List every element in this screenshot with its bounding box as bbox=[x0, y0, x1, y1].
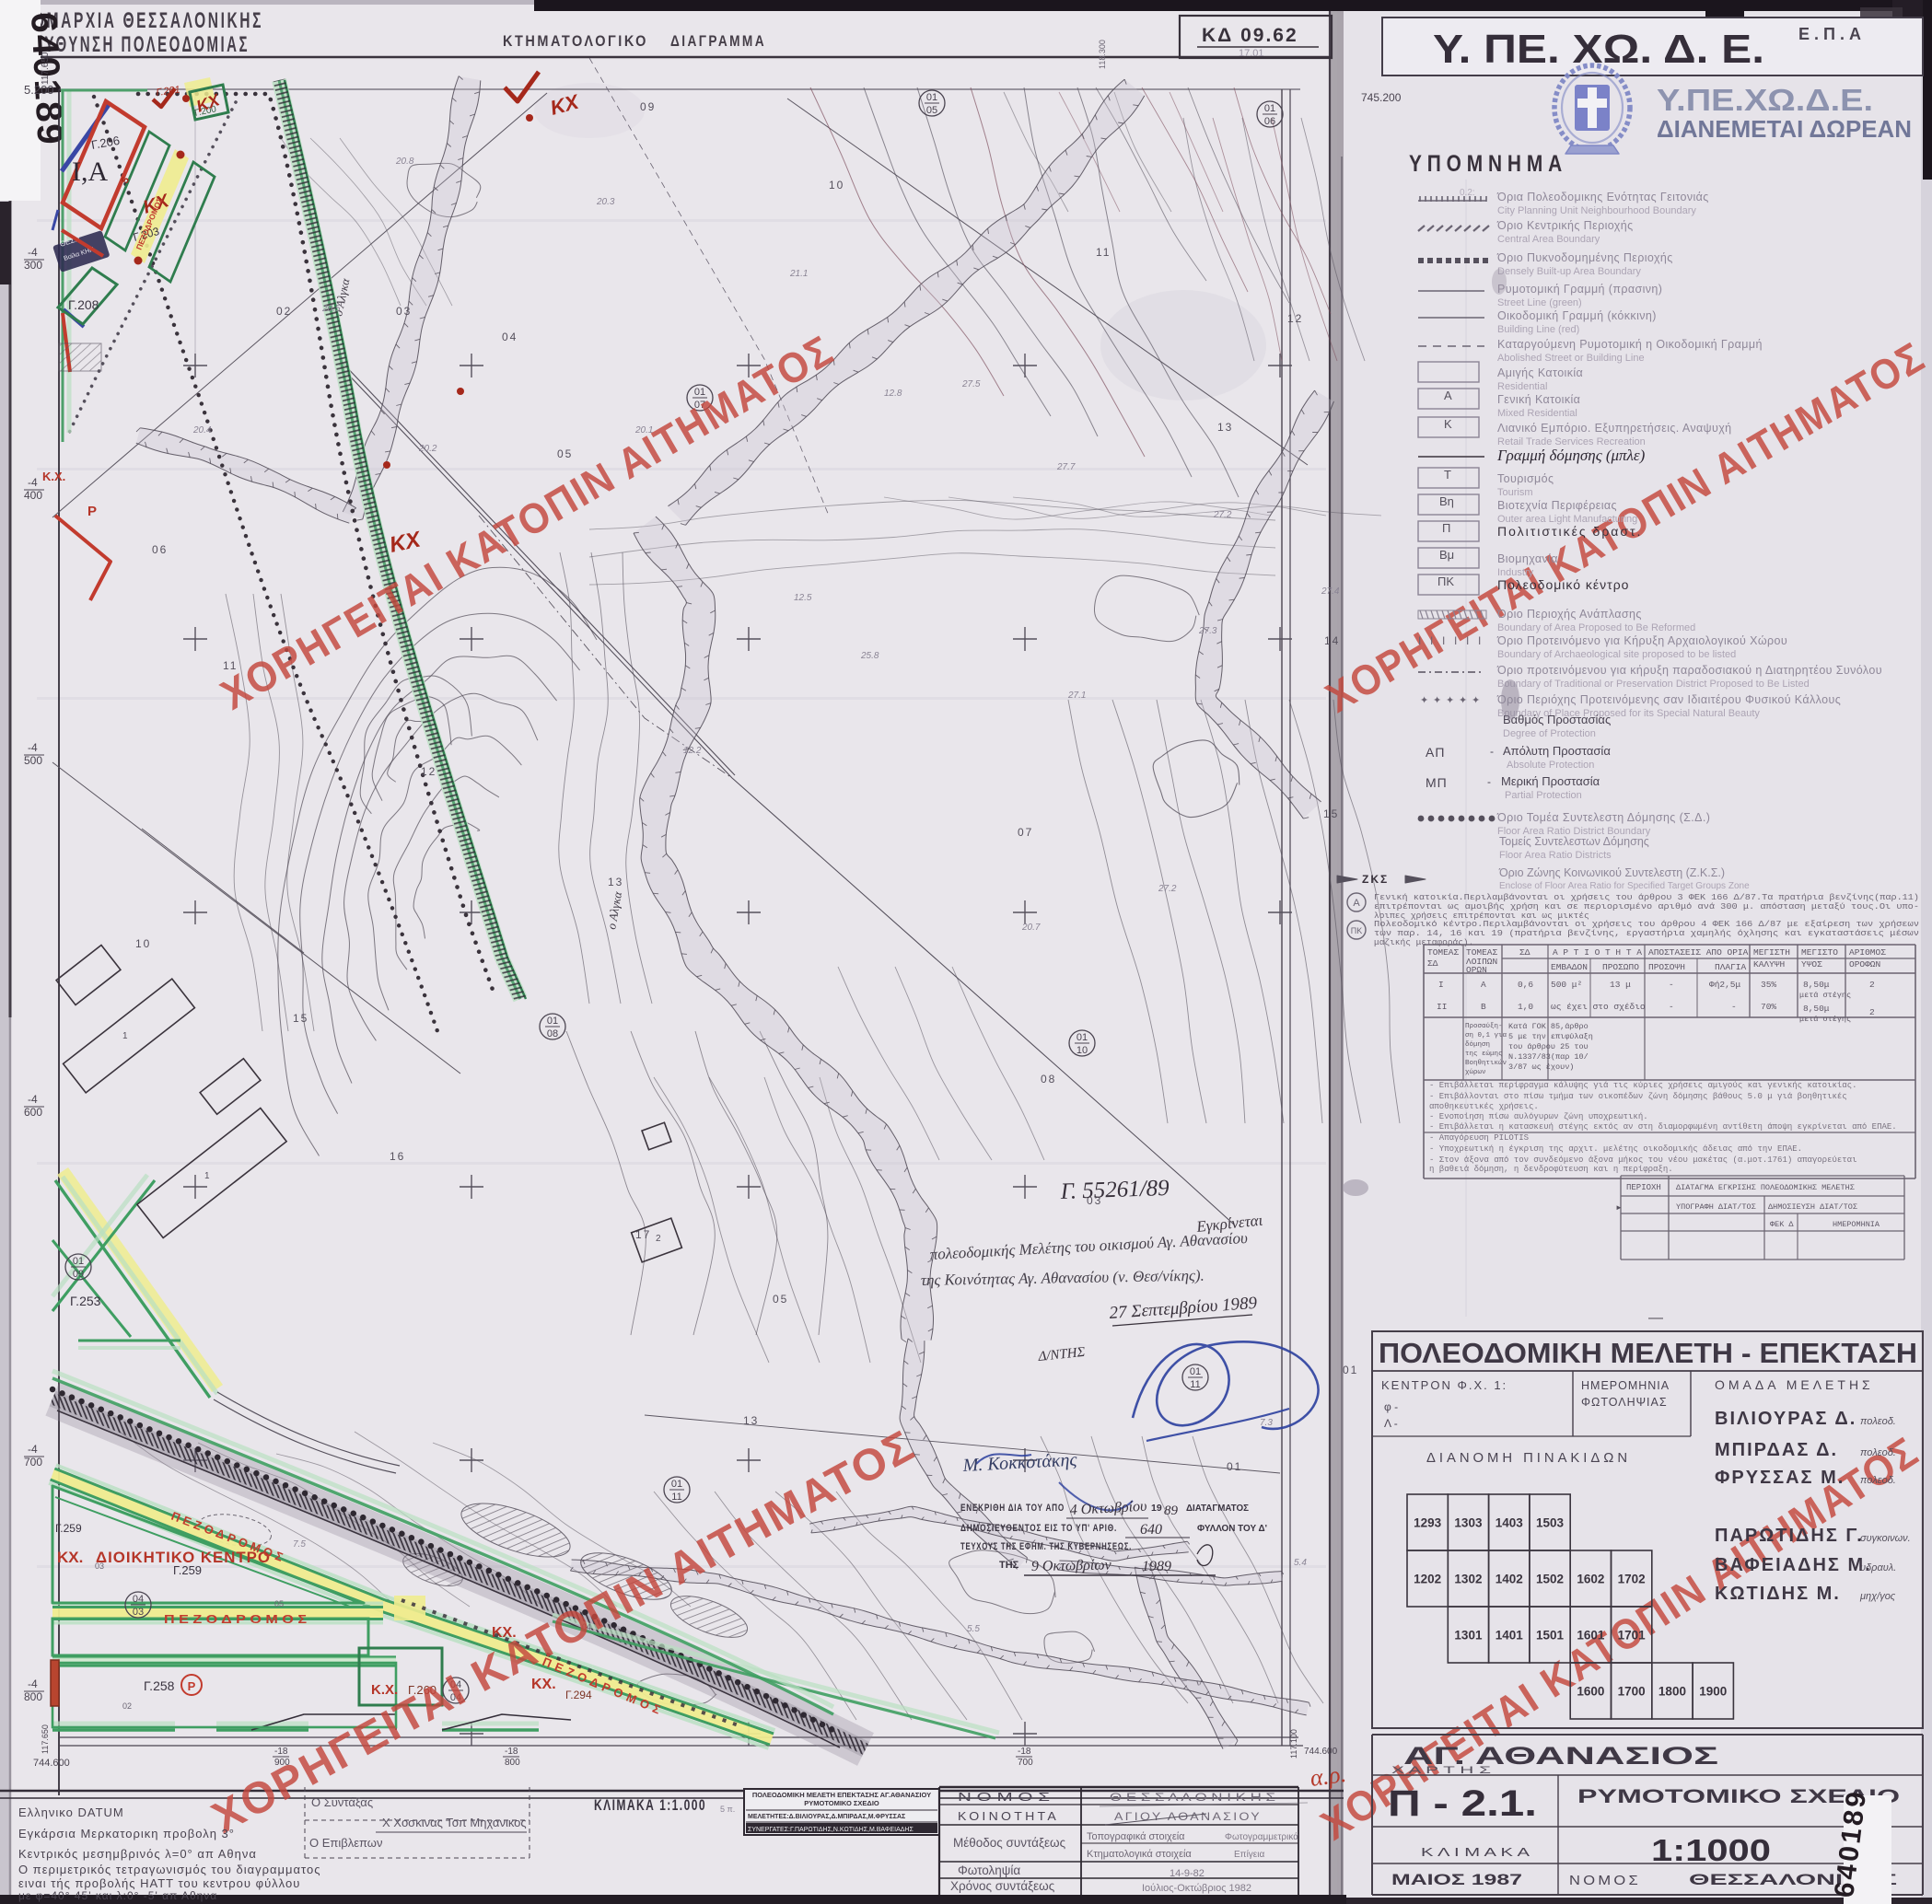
svg-text:ΣΔ: ΣΔ bbox=[1427, 958, 1438, 969]
svg-text:Ρυμοτομική Γραμμή (πρασινη): Ρυμοτομική Γραμμή (πρασινη) bbox=[1497, 283, 1662, 296]
svg-text:640: 640 bbox=[1140, 1522, 1162, 1538]
svg-text:117.100: 117.100 bbox=[1289, 1729, 1298, 1759]
svg-text:Όριο Τομέα Συντελεστη Δόμησης: Όριο Τομέα Συντελεστη Δόμησης (Σ.Δ.) bbox=[1496, 811, 1710, 824]
svg-text:Όρια Πολεοδομικης Ενότητας Γ: Όρια Πολεοδομικης Ενότητας Γειτονιάς bbox=[1496, 191, 1709, 203]
svg-text:1403: 1403 bbox=[1496, 1516, 1524, 1530]
svg-text:Densely Built-up Area Boundary: Densely Built-up Area Boundary bbox=[1497, 266, 1641, 277]
svg-text:05: 05 bbox=[926, 105, 937, 116]
svg-text:ΠΕΡΙΟΧΗ: ΠΕΡΙΟΧΗ bbox=[1626, 1183, 1661, 1192]
svg-text:ΑΠ: ΑΠ bbox=[1426, 745, 1445, 760]
svg-text:Α: Α bbox=[1444, 389, 1452, 402]
svg-text:ΔΙΑΝΟΜΗ ΠΙΝΑΚΙΔΩΝ: ΔΙΑΝΟΜΗ ΠΙΝΑΚΙΔΩΝ bbox=[1426, 1450, 1631, 1466]
svg-text:08: 08 bbox=[547, 1028, 558, 1039]
svg-text:►: ► bbox=[1615, 1203, 1623, 1212]
svg-text:1501: 1501 bbox=[1536, 1629, 1565, 1643]
svg-text:Όριο Περιόχης Προτεινόμενης σα: Όριο Περιόχης Προτεινόμενης σαν Ιδιαιτέρ… bbox=[1496, 693, 1841, 706]
svg-text:συγκοινων.: συγκοινων. bbox=[1860, 1533, 1911, 1544]
svg-text:ΥΨΟΣ: ΥΨΟΣ bbox=[1801, 959, 1822, 969]
svg-text:Α: Α bbox=[1481, 980, 1486, 990]
svg-text:744.600: 744.600 bbox=[33, 1758, 70, 1769]
svg-text:27.7: 27.7 bbox=[1056, 462, 1076, 472]
svg-text:Abolished Street or Building L: Abolished Street or Building Line bbox=[1497, 353, 1645, 364]
svg-text:ΠΚ: ΠΚ bbox=[1437, 575, 1454, 588]
svg-text:ΑΠΟΣΤΑΣΕΙΣ ΑΠΟ ΟΡΙΑ: ΑΠΟΣΤΑΣΕΙΣ ΑΠΟ ΟΡΙΑ bbox=[1648, 947, 1749, 958]
svg-text:ΔΙΑΤΑΓΜΑ ΕΓΚΡΙΣΗΣ ΠΟΛΕΟΔΟΜΙΚΗΣ: ΔΙΑΤΑΓΜΑ ΕΓΚΡΙΣΗΣ ΠΟΛΕΟΔΟΜΙΚΗΣ ΜΕΛΕΤΗΣ bbox=[1676, 1183, 1855, 1192]
svg-text:Λιανικό Εμπόριο. Εξυπηρετήσεις: Λιανικό Εμπόριο. Εξυπηρετήσεις. Αναψυχή bbox=[1497, 422, 1732, 435]
svg-text:Βιομηχανία: Βιομηχανία bbox=[1497, 552, 1558, 565]
svg-text:Ι: Ι bbox=[1478, 634, 1481, 647]
svg-text:Ε.Π.Α: Ε.Π.Α bbox=[1798, 25, 1866, 43]
svg-text:Ι,Α: Ι,Α bbox=[72, 157, 108, 187]
svg-text:Α Ρ Τ Ι Ο Τ Η Τ Α: Α Ρ Τ Ι Ο Τ Η Τ Α bbox=[1553, 947, 1642, 958]
svg-text:02: 02 bbox=[122, 1701, 132, 1711]
svg-text:ΟΜΑΡΧΙΑ ΘΕΣΣΑΛΟΝΙΚΗΣ: ΟΜΑΡΧΙΑ ΘΕΣΣΑΛΟΝΙΚΗΣ bbox=[33, 8, 263, 33]
svg-text:12: 12 bbox=[1287, 312, 1303, 325]
svg-text:ΔΗΜΟΣΙΕΥΘΕΝΤΟΣ ΕΙΣ ΤΟ ΥΠ' Α: ΔΗΜΟΣΙΕΥΘΕΝΤΟΣ ΕΙΣ ΤΟ ΥΠ' ΑΡΙΘ. bbox=[960, 1523, 1117, 1534]
svg-text:Γ.208: Γ.208 bbox=[68, 297, 99, 312]
svg-text:-4: -4 bbox=[28, 1678, 38, 1690]
svg-text:04: 04 bbox=[502, 331, 518, 343]
svg-text:1401: 1401 bbox=[1496, 1629, 1524, 1643]
svg-text:10: 10 bbox=[135, 937, 151, 950]
svg-text:ΚΑΛΥΨΗ: ΚΑΛΥΨΗ bbox=[1753, 959, 1785, 969]
svg-text:-18: -18 bbox=[1018, 1747, 1031, 1757]
svg-text:- Επιβάλλεται περίφραγμα κάλυψ: - Επιβάλλεται περίφραγμα κάλυψης γιά τις… bbox=[1429, 1081, 1856, 1090]
svg-text:Πολιτιστικές δραστ.: Πολιτιστικές δραστ. bbox=[1497, 524, 1642, 539]
svg-text:07: 07 bbox=[1018, 826, 1033, 839]
svg-text:Απόλυτη Προστασία: Απόλυτη Προστασία bbox=[1503, 744, 1611, 758]
svg-text:01: 01 bbox=[926, 92, 937, 103]
svg-text:117.650: 117.650 bbox=[41, 1724, 50, 1754]
svg-text:2: 2 bbox=[656, 1234, 661, 1244]
svg-text:2: 2 bbox=[1869, 1007, 1875, 1017]
svg-text:06: 06 bbox=[152, 543, 168, 556]
svg-text:ΜΑΙΟΣ 1987: ΜΑΙΟΣ 1987 bbox=[1391, 1871, 1522, 1888]
svg-text:ΔΙΑΝΕΜΕΤΑΙ ΔΩΡΕΑΝ: ΔΙΑΝΕΜΕΤΑΙ ΔΩΡΕΑΝ bbox=[1657, 115, 1912, 143]
svg-text:δόμηση: δόμηση bbox=[1465, 1041, 1490, 1049]
svg-text:ως έχει στο σχέδιο: ως έχει στο σχέδιο bbox=[1551, 1002, 1646, 1012]
svg-text:Αμιγής Κατοικία: Αμιγής Κατοικία bbox=[1497, 366, 1583, 379]
svg-text:27.2: 27.2 bbox=[1158, 884, 1177, 894]
svg-text:9 Οκτωβρίων: 9 Οκτωβρίων bbox=[1031, 1557, 1112, 1574]
svg-text:-: - bbox=[1669, 1002, 1674, 1012]
svg-text:ΔΗΜΟΣΙΕΥΣΗ ΔΙΑΤ/ΤΟΣ: ΔΗΜΟΣΙΕΥΣΗ ΔΙΑΤ/ΤΟΣ bbox=[1768, 1202, 1857, 1212]
svg-text:Βιοτεχνία Περιφέρειας: Βιοτεχνία Περιφέρειας bbox=[1497, 499, 1617, 512]
svg-text:08: 08 bbox=[1041, 1073, 1056, 1086]
svg-text:11: 11 bbox=[671, 1492, 681, 1503]
svg-text:-4: -4 bbox=[28, 476, 38, 489]
svg-text:ΟΡΩΝ: ΟΡΩΝ bbox=[1466, 965, 1487, 975]
svg-text:ΠΟΛΕΟΔΟΜΙΚΗ ΜΕΛΕΤΗ - ΕΠΕΚΤΑΣΗ: ΠΟΛΕΟΔΟΜΙΚΗ ΜΕΛΕΤΗ - ΕΠΕΚΤΑΣΗ bbox=[1379, 1337, 1917, 1369]
svg-text:27.3: 27.3 bbox=[1198, 626, 1217, 636]
svg-text:Πολεοδομικό κέντρο: Πολεοδομικό κέντρο bbox=[1497, 577, 1629, 592]
svg-text:1202: 1202 bbox=[1414, 1573, 1441, 1586]
svg-text:Φωτοληψία: Φωτοληψία bbox=[958, 1863, 1020, 1877]
svg-text:Ο Επιβλεπων: Ο Επιβλεπων bbox=[309, 1836, 382, 1850]
svg-text:Γενική Κατοικία: Γενική Κατοικία bbox=[1497, 393, 1580, 406]
svg-text:03: 03 bbox=[95, 1562, 104, 1571]
svg-text:Building Line (red): Building Line (red) bbox=[1497, 324, 1579, 335]
svg-text:Επίγεια: Επίγεια bbox=[1234, 1849, 1264, 1860]
svg-text:20.2: 20.2 bbox=[418, 444, 437, 454]
svg-text:ΜΠΙΡΔΑΣ Δ.: ΜΠΙΡΔΑΣ Δ. bbox=[1715, 1440, 1838, 1460]
svg-text:ΝΟΜΟΣ: ΝΟΜΟΣ bbox=[1569, 1873, 1641, 1888]
svg-text:Κ: Κ bbox=[1444, 417, 1452, 431]
svg-text:Χρόνος συντάξεως: Χρόνος συντάξεως bbox=[950, 1879, 1055, 1893]
svg-text:χώρων: χώρων bbox=[1465, 1069, 1486, 1076]
svg-text:ειναι τής προβολής ΗΑΤΤ του κε: ειναι τής προβολής ΗΑΤΤ του κεντρου φύλλ… bbox=[18, 1876, 300, 1890]
svg-text:745.200: 745.200 bbox=[1361, 91, 1402, 104]
svg-text:ΟΜΑΔΑ ΜΕΛΕΤΗΣ: ΟΜΑΔΑ ΜΕΛΕΤΗΣ bbox=[1715, 1377, 1874, 1392]
svg-text:1301: 1301 bbox=[1454, 1629, 1483, 1643]
svg-text:Ι: Ι bbox=[1430, 634, 1433, 647]
svg-text:Partial Protection: Partial Protection bbox=[1505, 790, 1582, 801]
svg-text:Residential: Residential bbox=[1497, 381, 1547, 392]
svg-text:27.1: 27.1 bbox=[1067, 691, 1086, 701]
svg-text:ΒΑΦΕΙΑΔΗΣ Μ.: ΒΑΦΕΙΑΔΗΣ Μ. bbox=[1715, 1555, 1872, 1575]
svg-text:ΜΕΛΕΤΗΤΕΣ:Δ.ΒΙΛΙΟΥΡΑΣ,Δ.ΜΠΙΡΔΑ: ΜΕΛΕΤΗΤΕΣ:Δ.ΒΙΛΙΟΥΡΑΣ,Δ.ΜΠΙΡΔΑΣ,Μ.ΦΡΥΣΣΑ… bbox=[748, 1814, 905, 1820]
svg-text:01: 01 bbox=[73, 1256, 84, 1267]
svg-text:03: 03 bbox=[396, 305, 412, 318]
svg-text:✦: ✦ bbox=[1472, 695, 1480, 706]
svg-text:800: 800 bbox=[24, 1690, 42, 1703]
svg-text:Βη: Βη bbox=[1439, 494, 1454, 508]
svg-text:2: 2 bbox=[1869, 980, 1875, 990]
svg-text:ΜΕΓΙΣΤΟ: ΜΕΓΙΣΤΟ bbox=[1801, 947, 1838, 958]
svg-text:400: 400 bbox=[24, 489, 42, 502]
svg-text:12.2: 12.2 bbox=[683, 746, 702, 756]
svg-text:ΖΚΣ: ΖΚΣ bbox=[1362, 873, 1389, 886]
svg-text:Υ.ΠΕ.ΧΩ.Δ.Ε.: Υ.ΠΕ.ΧΩ.Δ.Ε. bbox=[1657, 83, 1873, 117]
svg-text:ΣΔ: ΣΔ bbox=[1519, 947, 1530, 958]
svg-text:ΦΡΥΣΣΑΣ Μ.: ΦΡΥΣΣΑΣ Μ. bbox=[1715, 1468, 1845, 1488]
svg-text:03: 03 bbox=[133, 1607, 144, 1618]
svg-text:5.4: 5.4 bbox=[1294, 1558, 1307, 1568]
svg-text:- Στον άξονα από τον συνδεόμεν: - Στον άξονα από τον συνδεόμενο άξονα μή… bbox=[1429, 1155, 1856, 1165]
svg-text:Γ.294: Γ.294 bbox=[565, 1689, 592, 1701]
svg-text:500: 500 bbox=[24, 754, 42, 767]
svg-text:ΜΠ: ΜΠ bbox=[1426, 775, 1448, 790]
svg-text:20.3: 20.3 bbox=[596, 197, 615, 207]
svg-text:06: 06 bbox=[1264, 116, 1275, 127]
svg-text:17.01: 17.01 bbox=[1239, 48, 1264, 59]
svg-text:15: 15 bbox=[293, 1012, 308, 1025]
svg-text:ΚΛΙΜΑΚΑ 1:1.000: ΚΛΙΜΑΚΑ 1:1.000 bbox=[594, 1796, 706, 1814]
svg-text:Τουρισμός: Τουρισμός bbox=[1497, 472, 1554, 485]
svg-text:Ιούλιος-Οκτώβριος 1982: Ιούλιος-Οκτώβριος 1982 bbox=[1142, 1883, 1251, 1894]
svg-text:1303: 1303 bbox=[1454, 1516, 1483, 1530]
svg-text:Καταργούμενη Ρυμοτομική η Οικο: Καταργούμενη Ρυμοτομική η Οικοδομική Γρα… bbox=[1497, 338, 1763, 351]
svg-text:Οικοδομική Γραμμή (κόκκινη): Οικοδομική Γραμμή (κόκκινη) bbox=[1497, 309, 1657, 322]
svg-text:Χ Χοσκινας Τοπ Μηχανικος: Χ Χοσκινας Τοπ Μηχανικος bbox=[382, 1816, 527, 1829]
svg-text:ΠΚ: ΠΚ bbox=[1351, 926, 1363, 935]
svg-text:ΣΥΝΕΡΓΑΤΕΣ:Γ.ΠΑΡΩΤΙΔΗΣ,Ν.ΚΩΤΙΔ: ΣΥΝΕΡΓΑΤΕΣ:Γ.ΠΑΡΩΤΙΔΗΣ,Ν.ΚΩΤΙΔΗΣ,Μ.ΒΑΦΕΙ… bbox=[748, 1827, 914, 1833]
svg-text:αποθηκευτικές χρήσεις.: αποθηκευτικές χρήσεις. bbox=[1429, 1102, 1539, 1111]
svg-text:πολεοδ.: πολεοδ. bbox=[1860, 1416, 1896, 1427]
svg-text:300: 300 bbox=[24, 259, 42, 272]
svg-text:Enclose of Floor Area Ratio fo: Enclose of Floor Area Ratio for Specifie… bbox=[1499, 881, 1750, 891]
svg-text:17: 17 bbox=[635, 1228, 651, 1241]
svg-text:-4: -4 bbox=[28, 1443, 38, 1456]
svg-text:1900: 1900 bbox=[1699, 1685, 1727, 1699]
svg-text:1701: 1701 bbox=[1618, 1629, 1647, 1643]
svg-text:Ι: Ι bbox=[1442, 634, 1445, 647]
svg-text:Κεντρικός μεσημβρινός λ=0°: Κεντρικός μεσημβρινός λ=0° απ Αθηνα bbox=[18, 1847, 257, 1861]
svg-text:Βμ: Βμ bbox=[1439, 548, 1454, 562]
svg-text:Ι: Ι bbox=[1418, 634, 1421, 647]
svg-text:15: 15 bbox=[1323, 807, 1339, 820]
svg-text:Ι: Ι bbox=[1466, 634, 1469, 647]
svg-text:700: 700 bbox=[1018, 1758, 1033, 1768]
svg-text:Όριο Περιοχής Ανάπλασης: Όριο Περιοχής Ανάπλασης bbox=[1496, 608, 1642, 621]
svg-text:Ο περιμετρικός τετραγωνισμός τ: Ο περιμετρικός τετραγωνισμός του διαγραμ… bbox=[18, 1863, 320, 1876]
svg-text:Π: Π bbox=[1442, 521, 1450, 535]
svg-text:υδραυλ.: υδραυλ. bbox=[1860, 1562, 1896, 1573]
svg-text:27.2: 27.2 bbox=[1213, 510, 1232, 520]
svg-text:800: 800 bbox=[505, 1758, 520, 1768]
svg-text:- Επιβάλλεται η κατασκευή στέγ: - Επιβάλλεται η κατασκευή στέγης εκτός α… bbox=[1429, 1122, 1897, 1132]
svg-text:Βοηθητικών: Βοηθητικών bbox=[1465, 1060, 1507, 1067]
svg-text:01: 01 bbox=[1343, 1364, 1358, 1376]
svg-text:70%: 70% bbox=[1761, 1002, 1776, 1012]
svg-text:Ν.1337/83(παρ 10/: Ν.1337/83(παρ 10/ bbox=[1508, 1052, 1589, 1062]
svg-text:19: 19 bbox=[1151, 1503, 1162, 1514]
svg-text:με φ=40° 45' και λ:0° -: με φ=40° 45' και λ:0° -5' απ Αθηνα bbox=[18, 1889, 217, 1902]
svg-text:-4: -4 bbox=[28, 246, 38, 259]
svg-text:- Υποχρεωτική η έγκριση της αρ: - Υποχρεωτική η έγκριση της αρχιτ. μελέτ… bbox=[1429, 1144, 1802, 1154]
svg-text:1503: 1503 bbox=[1536, 1516, 1565, 1530]
svg-text:✦: ✦ bbox=[1459, 695, 1467, 706]
svg-text:Όριο Προτεινόμενο για Κήρυξη Α: Όριο Προτεινόμενο για Κήρυξη Αρχαιολογικ… bbox=[1496, 634, 1787, 647]
svg-text:1293: 1293 bbox=[1414, 1516, 1442, 1530]
svg-text:14-9-82: 14-9-82 bbox=[1170, 1868, 1205, 1879]
svg-text:Ελληνικο DATUM: Ελληνικο DATUM bbox=[18, 1805, 124, 1819]
svg-text:ΦΥΛΛΟΝ ΤΟΥ Δ': ΦΥΛΛΟΝ ΤΟΥ Δ' bbox=[1197, 1523, 1267, 1534]
svg-text:ΥΠΟΜΝΗΜΑ: ΥΠΟΜΝΗΜΑ bbox=[1409, 151, 1567, 177]
svg-text:ΠΟΛΕΟΔΟΜΙΚΗ ΜΕΛΕΤΗ ΕΠΕΚΤΑΣΗΣ Α: ΠΟΛΕΟΔΟΜΙΚΗ ΜΕΛΕΤΗ ΕΠΕΚΤΑΣΗΣ ΑΓ.ΑΘΑΝΑΣΙΟ… bbox=[752, 1791, 931, 1799]
svg-text:μετά στέγης: μετά στέγης bbox=[1799, 1015, 1851, 1024]
svg-text:Μέθοδος συντάξεως: Μέθοδος συντάξεως bbox=[953, 1836, 1066, 1850]
svg-text:Τομείς Συντελεστων Δόμησης: Τομείς Συντελεστων Δόμησης bbox=[1499, 835, 1649, 848]
svg-text:5.5: 5.5 bbox=[967, 1624, 980, 1634]
svg-text:Street Line (green): Street Line (green) bbox=[1497, 297, 1582, 308]
svg-text:Τ: Τ bbox=[1444, 468, 1451, 482]
svg-text:3/87 ως έχουν): 3/87 ως έχουν) bbox=[1508, 1062, 1574, 1072]
svg-text:1602: 1602 bbox=[1577, 1573, 1604, 1586]
svg-text:1600: 1600 bbox=[1577, 1685, 1604, 1699]
svg-text:1302: 1302 bbox=[1454, 1573, 1482, 1586]
svg-text:της εώμης: της εώμης bbox=[1465, 1051, 1503, 1058]
svg-text:Absolute Protection: Absolute Protection bbox=[1507, 760, 1594, 771]
svg-text:20.7: 20.7 bbox=[1021, 923, 1041, 933]
svg-text:-: - bbox=[1669, 980, 1674, 990]
svg-text:20.5: 20.5 bbox=[321, 304, 341, 314]
svg-text:12.8: 12.8 bbox=[884, 389, 902, 399]
svg-text:φ -: φ - bbox=[1384, 1400, 1398, 1413]
svg-text:7.5: 7.5 bbox=[293, 1539, 306, 1550]
svg-text:Κ Λ Ι Μ Α Κ Α: Κ Λ Ι Μ Α Κ Α bbox=[1421, 1845, 1530, 1859]
svg-text:ΚΕΝΤΡΟΝ Φ.Χ. 1:: ΚΕΝΤΡΟΝ Φ.Χ. 1: bbox=[1381, 1378, 1507, 1392]
svg-text:Central Area Boundary: Central Area Boundary bbox=[1497, 234, 1600, 245]
svg-text:Γραμμή δόμησης (μπλε): Γραμμή δόμησης (μπλε) bbox=[1496, 447, 1646, 464]
svg-text:01: 01 bbox=[671, 1479, 682, 1490]
svg-text:700: 700 bbox=[24, 1456, 42, 1469]
svg-text:Φή2,5μ: Φή2,5μ bbox=[1709, 980, 1741, 990]
svg-text:05: 05 bbox=[557, 447, 573, 460]
svg-text:20.4: 20.4 bbox=[192, 425, 212, 435]
svg-text:Λ -: Λ - bbox=[1384, 1417, 1398, 1430]
svg-text:1402: 1402 bbox=[1496, 1573, 1523, 1586]
svg-text:1700: 1700 bbox=[1618, 1685, 1646, 1699]
svg-text:ΗΜΕΡΟΜΗΝΙΑ: ΗΜΕΡΟΜΗΝΙΑ bbox=[1833, 1220, 1880, 1229]
svg-text:η βαθειά δόμηση, η δενδροφύτευ: η βαθειά δόμηση, η δενδροφύτευση και η π… bbox=[1429, 1165, 1673, 1174]
svg-text:Degree of Protection: Degree of Protection bbox=[1503, 728, 1596, 739]
svg-text:600: 600 bbox=[24, 1106, 42, 1119]
svg-text:Χ Α Ρ Τ Η Σ: Χ Α Ρ Τ Η Σ bbox=[1391, 1765, 1491, 1776]
svg-text:ΠΛΑΓΙΑ: ΠΛΑΓΙΑ bbox=[1715, 962, 1747, 972]
svg-text:P: P bbox=[188, 1679, 196, 1693]
svg-text:- Επιβάλλονται στο πίσω τμήμα: - Επιβάλλονται στο πίσω τμήμα των οικοπέ… bbox=[1429, 1092, 1847, 1101]
svg-text:Boundary of Area Proposed to B: Boundary of Area Proposed to Be Reformed bbox=[1497, 622, 1695, 633]
svg-text:Όριο Ζώνης Κοινωνικού Συντελεσ: Όριο Ζώνης Κοινωνικού Συντελεστη (Ζ.Κ.Σ.… bbox=[1498, 866, 1725, 879]
svg-text:μετά στέγης: μετά στέγης bbox=[1799, 991, 1851, 1000]
svg-text:ΤΟΜΕΑΣ: ΤΟΜΕΑΣ bbox=[1427, 947, 1460, 958]
svg-text:Βαθμός Προστασίας: Βαθμός Προστασίας bbox=[1503, 713, 1611, 726]
svg-text:11: 11 bbox=[1096, 246, 1111, 259]
svg-text:Μερική Προστασία: Μερική Προστασία bbox=[1501, 774, 1600, 788]
svg-text:118.300: 118.300 bbox=[1098, 40, 1107, 69]
svg-text:Τοπογραφικά στοιχεία: Τοπογραφικά στοιχεία bbox=[1087, 1831, 1185, 1842]
svg-text:01: 01 bbox=[1077, 1032, 1088, 1043]
svg-text:14: 14 bbox=[1324, 634, 1340, 647]
svg-text:Γ.259: Γ.259 bbox=[173, 1563, 202, 1577]
svg-text:ΤΗΣ: ΤΗΣ bbox=[999, 1560, 1019, 1571]
svg-text:Γ. 55261/89: Γ. 55261/89 bbox=[1059, 1176, 1170, 1204]
svg-text:Όριο Κεντρικής Περιοχής: Όριο Κεντρικής Περιοχής bbox=[1496, 219, 1634, 232]
svg-text:12: 12 bbox=[421, 765, 436, 778]
svg-text:Ο Συντάξας: Ο Συντάξας bbox=[311, 1795, 373, 1809]
svg-text:Boundary of Archaeological sit: Boundary of Archaeological site proposed… bbox=[1497, 649, 1736, 660]
svg-text:ΑΡΙΘΜΟΣ: ΑΡΙΘΜΟΣ bbox=[1849, 947, 1886, 958]
svg-text:10: 10 bbox=[829, 179, 844, 192]
svg-text:ΠΡΟΣΩΠΟ: ΠΡΟΣΩΠΟ bbox=[1602, 962, 1639, 972]
svg-text:ΗΜΕΡΟΜΗΝΙΑ: ΗΜΕΡΟΜΗΝΙΑ bbox=[1581, 1379, 1670, 1392]
svg-text:ΦΕΚ Δ: ΦΕΚ Δ bbox=[1770, 1220, 1794, 1229]
svg-text:City Planning Unit Neighbourho: City Planning Unit Neighbourhood Boundar… bbox=[1497, 205, 1696, 216]
svg-text:5 με την επιφύλαξη: 5 με την επιφύλαξη bbox=[1508, 1032, 1593, 1041]
svg-text:ση 0,1 για: ση 0,1 για bbox=[1465, 1032, 1507, 1039]
svg-text:13: 13 bbox=[1217, 421, 1233, 434]
svg-text:ΕΜΒΑΔΟΝ: ΕΜΒΑΔΟΝ bbox=[1551, 962, 1588, 972]
svg-text:Ι: Ι bbox=[1438, 980, 1444, 990]
svg-text:27.4: 27.4 bbox=[1321, 586, 1340, 597]
svg-text:Boundary of Traditional or Pre: Boundary of Traditional or Preservation … bbox=[1497, 679, 1810, 690]
svg-text:ΤΕΥΧΟΥΣ ΤΗΣ ΕΦΗΜ. ΤΗΣ ΚΥΒΕΡΝΗ: ΤΕΥΧΟΥΣ ΤΗΣ ΕΦΗΜ. ΤΗΣ ΚΥΒΕΡΝΗΣΕΩΣ. bbox=[960, 1541, 1132, 1552]
svg-text:1800: 1800 bbox=[1658, 1685, 1686, 1699]
svg-text:Φωτογραμμετρικά: Φωτογραμμετρικά bbox=[1225, 1831, 1298, 1842]
svg-text:του άρθρου 25 του: του άρθρου 25 του bbox=[1508, 1042, 1589, 1051]
svg-text:-4: -4 bbox=[28, 741, 38, 754]
svg-text:✦: ✦ bbox=[1446, 695, 1454, 706]
svg-text:πολεοδ.: πολεοδ. bbox=[1860, 1475, 1896, 1486]
svg-text:1989: 1989 bbox=[1142, 1559, 1171, 1574]
svg-text:04: 04 bbox=[133, 1594, 144, 1605]
svg-text:-: - bbox=[1487, 775, 1491, 788]
svg-text:89: 89 bbox=[1164, 1503, 1179, 1518]
svg-text:ΔΙΑΤΑΓΜΑΤΟΣ: ΔΙΑΤΑΓΜΑΤΟΣ bbox=[1186, 1503, 1249, 1514]
svg-text:Εγκάρσια Μερκατορικη προβολη 3: Εγκάρσια Μερκατορικη προβολη 3° bbox=[18, 1827, 235, 1840]
svg-text:01: 01 bbox=[1264, 103, 1275, 114]
svg-text:ΦΩΤΟΛΗΨΙΑΣ: ΦΩΤΟΛΗΨΙΑΣ bbox=[1581, 1396, 1668, 1409]
svg-text:ΠΡΟΣΟΨΗ: ΠΡΟΣΟΨΗ bbox=[1648, 962, 1685, 972]
svg-text:ΚΩΤΙΔΗΣ Μ.: ΚΩΤΙΔΗΣ Μ. bbox=[1715, 1584, 1841, 1604]
svg-text:Κατά ΓΟΚ 85,άρθρο: Κατά ΓΟΚ 85,άρθρο bbox=[1508, 1022, 1589, 1031]
svg-text:11: 11 bbox=[1190, 1379, 1200, 1390]
svg-text:Γ.259: Γ.259 bbox=[55, 1522, 82, 1535]
svg-text:—: — bbox=[1648, 1310, 1663, 1326]
svg-text:- Απαγόρευση PILOTIS: - Απαγόρευση PILOTIS bbox=[1429, 1133, 1529, 1143]
svg-text:117.650: 117.650 bbox=[41, 52, 51, 85]
svg-text:13: 13 bbox=[743, 1414, 759, 1427]
svg-text:Κτηματολογικά στοιχεία: Κτηματολογικά στοιχεία bbox=[1087, 1849, 1192, 1860]
svg-text:0,6: 0,6 bbox=[1518, 980, 1533, 990]
svg-text:05: 05 bbox=[274, 1599, 284, 1608]
svg-text:25.8: 25.8 bbox=[860, 651, 879, 661]
svg-text:12.5: 12.5 bbox=[794, 593, 812, 603]
svg-text:ΔΙΑΓΡΑΜΜΑ: ΔΙΑΓΡΑΜΜΑ bbox=[670, 32, 766, 50]
svg-text:7.3: 7.3 bbox=[1260, 1418, 1273, 1428]
svg-text:Κ.Χ.: Κ.Χ. bbox=[42, 470, 65, 483]
svg-text:1:1000: 1:1000 bbox=[1651, 1833, 1771, 1867]
svg-text:Ρ: Ρ bbox=[87, 504, 97, 519]
svg-text:Π Ε Ζ Ο Δ Ρ Ο Μ Ο Σ: Π Ε Ζ Ο Δ Ρ Ο Μ Ο Σ bbox=[164, 1612, 307, 1626]
svg-text:13: 13 bbox=[608, 876, 623, 888]
svg-text:Mixed Residential: Mixed Residential bbox=[1497, 408, 1577, 419]
svg-text:Γ.258: Γ.258 bbox=[144, 1678, 175, 1693]
svg-text:Όριο προτεινόμενου για κήρυξη: Όριο προτεινόμενου για κήρυξη παραδοσιακ… bbox=[1496, 664, 1882, 677]
svg-text:ΥΠΟΓΡΑΦΗ ΔΙΑΤ/ΤΟΣ: ΥΠΟΓΡΑΦΗ ΔΙΑΤ/ΤΟΣ bbox=[1676, 1202, 1756, 1212]
svg-text:-: - bbox=[1490, 745, 1494, 758]
svg-text:Ν Ο Μ Ο Σ: Ν Ο Μ Ο Σ bbox=[958, 1790, 1050, 1804]
svg-text:Όριο Πυκνοδομημένης Περιοχής: Όριο Πυκνοδομημένης Περιοχής bbox=[1496, 251, 1673, 264]
svg-text:5 π.: 5 π. bbox=[720, 1805, 735, 1814]
svg-text:πολεοδ.: πολεοδ. bbox=[1860, 1447, 1896, 1458]
svg-text:16: 16 bbox=[390, 1150, 405, 1163]
svg-text:02: 02 bbox=[276, 305, 292, 318]
svg-text:20.8: 20.8 bbox=[395, 157, 414, 167]
svg-text:Θ Ε Σ Σ Α Λ Ο Ν Ι Κ Η Σ: Θ Ε Σ Σ Α Λ Ο Ν Ι Κ Η Σ bbox=[1110, 1791, 1275, 1804]
svg-text:ΚΤΗΜΑΤΟΛΟΓΙΚΟ: ΚΤΗΜΑΤΟΛΟΓΙΚΟ bbox=[503, 32, 648, 50]
svg-text:1502: 1502 bbox=[1536, 1573, 1564, 1586]
svg-text:05: 05 bbox=[773, 1293, 788, 1306]
svg-text:-4: -4 bbox=[28, 1093, 38, 1106]
svg-text:35%: 35% bbox=[1761, 980, 1776, 990]
svg-text:1702: 1702 bbox=[1618, 1573, 1646, 1586]
svg-text:0.2:: 0.2: bbox=[1460, 188, 1475, 198]
svg-text:ΙΙ: ΙΙ bbox=[1437, 1002, 1447, 1012]
svg-text:- Ενοποίηση πίσω αυλόγυρων ζών: - Ενοποίηση πίσω αυλόγυρων ζώνη υποχρεωτ… bbox=[1429, 1112, 1648, 1121]
svg-text:13 μ: 13 μ bbox=[1610, 980, 1631, 990]
svg-text:1: 1 bbox=[122, 1031, 128, 1041]
svg-text:10: 10 bbox=[1077, 1045, 1088, 1056]
svg-text:Floor Area Ratio Districts: Floor Area Ratio Districts bbox=[1499, 850, 1612, 861]
svg-text:27.5: 27.5 bbox=[961, 379, 981, 389]
svg-text:01: 01 bbox=[1227, 1460, 1242, 1473]
svg-text:1: 1 bbox=[204, 1171, 210, 1181]
svg-text:ΠΑΡΩΤΙΔΗΣ Γ.: ΠΑΡΩΤΙΔΗΣ Γ. bbox=[1715, 1526, 1864, 1546]
svg-text:α.ρ.: α.ρ. bbox=[1309, 1760, 1348, 1792]
svg-text:Β: Β bbox=[1481, 1002, 1486, 1012]
